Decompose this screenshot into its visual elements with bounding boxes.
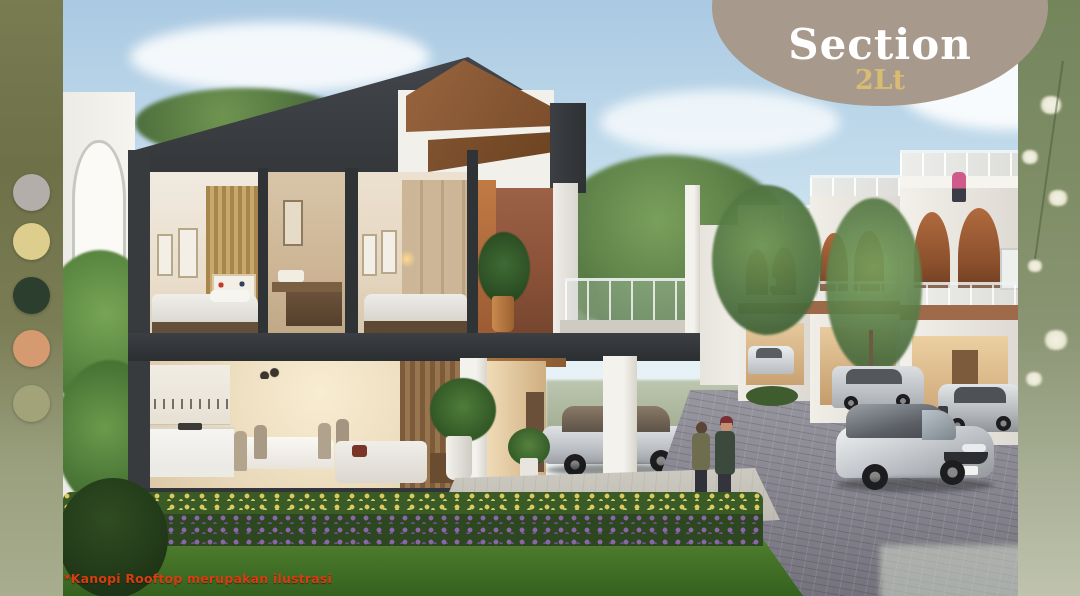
- vanity-cabinet: [286, 292, 342, 326]
- bed-base: [364, 321, 467, 333]
- wall-art: [157, 234, 173, 276]
- person-torso: [715, 431, 735, 475]
- parked-car-small: [748, 346, 794, 374]
- bedroom-1: [150, 172, 258, 333]
- palette-swatch-terracotta: [13, 330, 50, 367]
- wildflower: [1024, 372, 1044, 386]
- botanical-strip: [1018, 0, 1080, 596]
- wall-art: [178, 228, 198, 278]
- car-headlight: [962, 444, 986, 452]
- kitchen-tiles: [150, 365, 230, 425]
- sink-decor: [278, 270, 304, 282]
- rooftop-person: [952, 172, 966, 202]
- rooftop-block: [550, 103, 586, 193]
- street-tree: [712, 185, 822, 335]
- car-cabin: [954, 387, 1006, 403]
- parked-car-mid: [832, 366, 924, 408]
- wall-mullion: [345, 168, 358, 333]
- wildflower: [1042, 330, 1070, 350]
- wall-art: [362, 234, 377, 276]
- palette-swatch-sage-olive: [13, 385, 50, 422]
- car-cabin: [846, 369, 902, 384]
- palette-swatch-forest-green: [13, 277, 50, 314]
- bedroom-2: [358, 172, 467, 333]
- bed-base: [152, 322, 258, 333]
- hedge-purple-flowers: [63, 514, 763, 546]
- kitchen-counter: [150, 427, 234, 477]
- palette-swatch-warm-grey: [13, 174, 50, 211]
- wall-mullion: [467, 150, 478, 335]
- street-shrub: [746, 386, 798, 406]
- car-windshield: [922, 410, 956, 440]
- foreground-car: [836, 404, 994, 496]
- car-wheel: [996, 416, 1011, 431]
- carport-plant-pot: [446, 436, 472, 480]
- dining-chair: [318, 423, 331, 459]
- slide-title: Section: [788, 24, 972, 66]
- slide-subtitle: 2Lt: [855, 66, 905, 96]
- mirror: [283, 200, 303, 246]
- bed-pillow: [210, 290, 250, 302]
- pendant-lamp: [258, 363, 280, 379]
- wall-mullion: [258, 168, 268, 333]
- sofa-pillow: [352, 445, 367, 457]
- wall-art: [381, 230, 397, 274]
- section-left-wall: [128, 150, 150, 510]
- kitchen-utensil-rail: [154, 399, 230, 409]
- street-tree: [826, 198, 922, 373]
- wildflower: [1020, 150, 1040, 164]
- roof-railing: [810, 175, 906, 196]
- palette-swatch-pale-gold: [13, 223, 50, 260]
- wildflower: [1046, 190, 1070, 206]
- floor-slab: [128, 333, 750, 361]
- balcony-pillar: [685, 185, 700, 333]
- dining-chair: [254, 425, 267, 459]
- bathroom: [268, 172, 345, 333]
- presentation-slide: *Kanopi Rooftop merupakan ilustrasi Sect…: [0, 0, 1080, 596]
- stove: [178, 423, 202, 430]
- wall-lamp-glow: [398, 250, 416, 268]
- sofa: [335, 441, 427, 483]
- living-floor: [150, 361, 460, 489]
- balcony-arch: [958, 208, 1000, 288]
- balcony-plant: [478, 232, 530, 304]
- wood-panel-wall: [402, 180, 467, 310]
- balcony-slab: [560, 320, 700, 334]
- disclaimer-text: *Kanopi Rooftop merupakan ilustrasi: [64, 571, 332, 586]
- dining-chair: [234, 431, 247, 471]
- vanity-counter: [272, 282, 342, 292]
- plant-pot: [492, 296, 514, 332]
- car-shadow: [836, 478, 994, 492]
- car-cabin: [756, 348, 782, 358]
- cloud: [600, 90, 840, 154]
- carport-plant: [430, 378, 496, 442]
- palette-strip: [0, 0, 63, 596]
- wildflower: [1038, 96, 1064, 114]
- decor-tile: [236, 278, 248, 290]
- wildflower: [1026, 260, 1044, 272]
- person-torso: [692, 433, 710, 471]
- bed: [364, 294, 467, 324]
